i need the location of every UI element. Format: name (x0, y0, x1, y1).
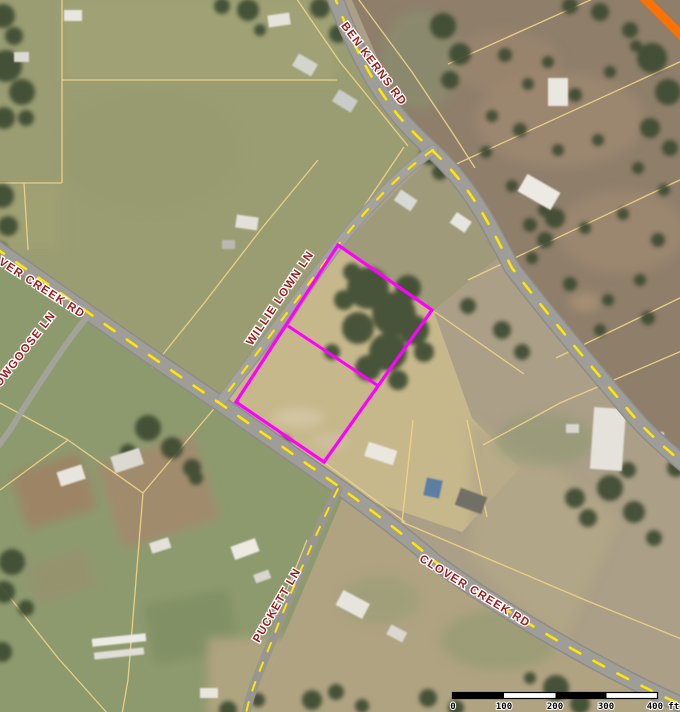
scale-tick-0: 0 (450, 702, 455, 712)
map-svg: BEN KERNS RD VER CREEK RD NOWGOOSE LN WI… (0, 0, 680, 712)
scale-tick-100: 100 (496, 702, 512, 712)
scale-tick-400ft: 400 ft (647, 702, 680, 712)
aerial-map-canvas[interactable]: BEN KERNS RD VER CREEK RD NOWGOOSE LN WI… (0, 0, 680, 712)
scale-tick-300: 300 (598, 702, 614, 712)
scale-tick-200: 200 (547, 702, 563, 712)
